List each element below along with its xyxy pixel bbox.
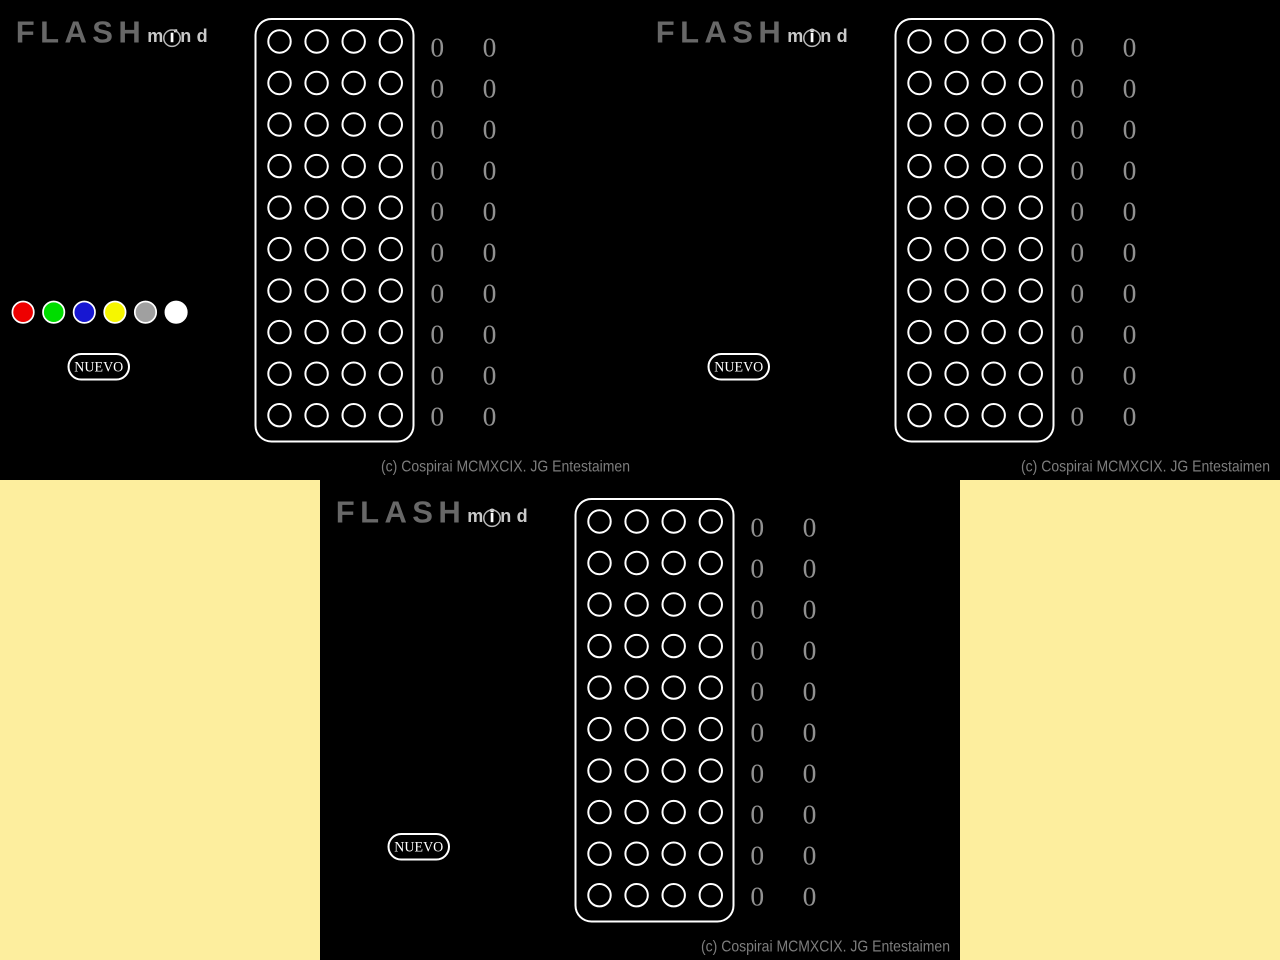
svg-text:0: 0 [803, 717, 817, 748]
svg-text:0: 0 [483, 360, 497, 391]
svg-text:0: 0 [430, 401, 444, 432]
svg-text:0: 0 [1123, 114, 1137, 145]
svg-text:0: 0 [483, 196, 497, 227]
svg-text:0: 0 [430, 32, 444, 63]
svg-text:0: 0 [1123, 360, 1137, 391]
svg-text:0: 0 [1123, 196, 1137, 227]
svg-text:0: 0 [1123, 319, 1137, 350]
svg-text:0: 0 [430, 278, 444, 309]
svg-text:0: 0 [430, 360, 444, 391]
svg-text:0: 0 [1070, 360, 1084, 391]
svg-text:FLASH: FLASH [336, 495, 467, 530]
svg-text:n: n [820, 26, 831, 46]
svg-text:0: 0 [1070, 319, 1084, 350]
svg-text:d: d [837, 26, 848, 46]
svg-text:0: 0 [803, 676, 817, 707]
svg-text:0: 0 [750, 594, 764, 625]
svg-text:0: 0 [803, 799, 817, 830]
svg-text:n: n [180, 26, 191, 46]
svg-text:NUEVO: NUEVO [74, 359, 123, 375]
svg-text:0: 0 [750, 840, 764, 871]
svg-text:0: 0 [430, 237, 444, 268]
svg-text:0: 0 [750, 758, 764, 789]
svg-text:0: 0 [803, 840, 817, 871]
svg-text:0: 0 [803, 594, 817, 625]
svg-text:(c) Cospirai MCMXCIX. JG Entes: (c) Cospirai MCMXCIX. JG Entestaimen [1021, 459, 1270, 476]
svg-text:0: 0 [750, 799, 764, 830]
svg-text:0: 0 [1123, 155, 1137, 186]
svg-text:0: 0 [803, 553, 817, 584]
svg-text:0: 0 [1123, 278, 1137, 309]
svg-text:0: 0 [1070, 237, 1084, 268]
svg-text:0: 0 [430, 73, 444, 104]
svg-text:0: 0 [803, 881, 817, 912]
svg-text:d: d [197, 26, 208, 46]
svg-text:NUEVO: NUEVO [714, 359, 763, 375]
svg-text:0: 0 [750, 635, 764, 666]
svg-text:m: m [467, 506, 483, 526]
svg-text:0: 0 [1070, 73, 1084, 104]
svg-text:(c) Cospirai MCMXCIX. JG Entes: (c) Cospirai MCMXCIX. JG Entestaimen [381, 459, 630, 476]
svg-text:0: 0 [1070, 401, 1084, 432]
svg-text:0: 0 [430, 155, 444, 186]
svg-text:0: 0 [750, 512, 764, 543]
svg-text:d: d [517, 506, 528, 526]
svg-text:0: 0 [1070, 114, 1084, 145]
svg-text:0: 0 [1070, 196, 1084, 227]
svg-text:0: 0 [1070, 32, 1084, 63]
svg-text:NUEVO: NUEVO [394, 839, 443, 855]
svg-text:0: 0 [483, 237, 497, 268]
svg-text:0: 0 [803, 512, 817, 543]
svg-text:0: 0 [430, 319, 444, 350]
svg-text:0: 0 [1123, 237, 1137, 268]
svg-text:0: 0 [1123, 401, 1137, 432]
svg-text:0: 0 [430, 196, 444, 227]
svg-text:0: 0 [483, 319, 497, 350]
svg-text:0: 0 [1070, 155, 1084, 186]
svg-text:FLASH: FLASH [656, 15, 787, 50]
svg-text:0: 0 [1070, 278, 1084, 309]
svg-text:0: 0 [803, 635, 817, 666]
svg-text:0: 0 [750, 676, 764, 707]
svg-text:0: 0 [483, 401, 497, 432]
svg-text:FLASH: FLASH [16, 15, 147, 50]
svg-text:0: 0 [1123, 32, 1137, 63]
svg-text:(c) Cospirai MCMXCIX. JG Entes: (c) Cospirai MCMXCIX. JG Entestaimen [701, 939, 950, 956]
svg-text:0: 0 [750, 553, 764, 584]
svg-text:0: 0 [1123, 73, 1137, 104]
svg-text:0: 0 [483, 155, 497, 186]
svg-text:0: 0 [483, 114, 497, 145]
svg-text:m: m [147, 26, 163, 46]
svg-text:0: 0 [483, 32, 497, 63]
svg-text:m: m [787, 26, 803, 46]
svg-text:0: 0 [430, 114, 444, 145]
svg-text:0: 0 [803, 758, 817, 789]
svg-text:0: 0 [750, 717, 764, 748]
svg-text:n: n [500, 506, 511, 526]
svg-text:0: 0 [750, 881, 764, 912]
svg-text:0: 0 [483, 278, 497, 309]
svg-text:0: 0 [483, 73, 497, 104]
